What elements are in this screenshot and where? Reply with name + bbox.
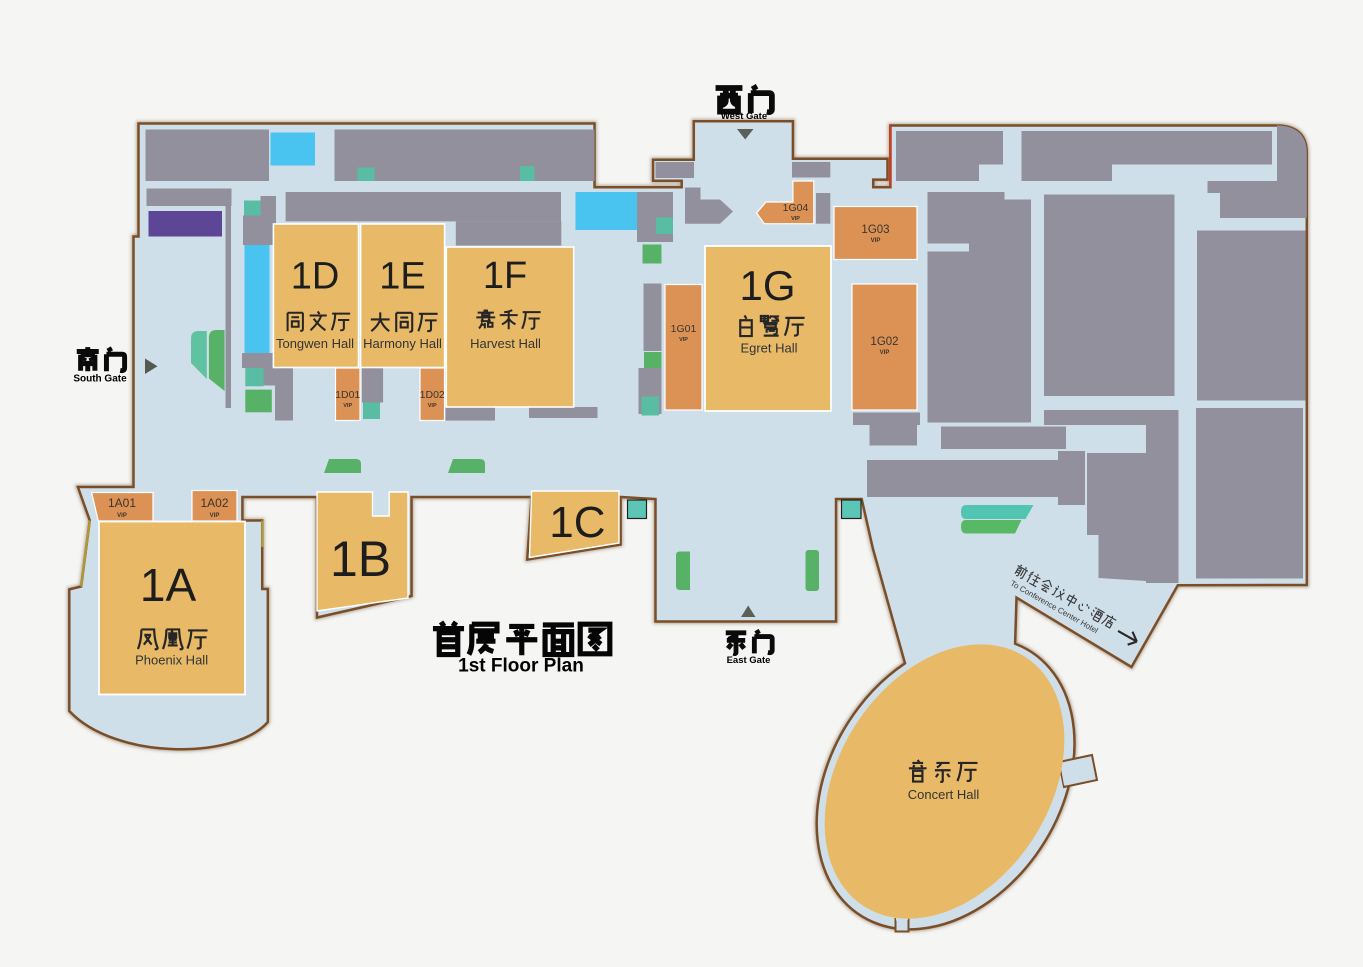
svg-text:1A02: 1A02 [200, 496, 228, 510]
svg-text:1st Floor Plan: 1st Floor Plan [458, 656, 584, 677]
svg-text:1G01: 1G01 [671, 323, 697, 335]
svg-text:1E: 1E [379, 256, 425, 298]
svg-text:1C: 1C [549, 498, 605, 547]
svg-text:East Gate: East Gate [727, 655, 771, 666]
svg-text:Phoenix Hall: Phoenix Hall [135, 653, 208, 668]
svg-text:1D01: 1D01 [335, 389, 360, 401]
svg-text:West Gate: West Gate [721, 111, 767, 122]
svg-text:VIP: VIP [210, 513, 220, 519]
svg-text:VIP: VIP [871, 238, 881, 244]
svg-text:1G04: 1G04 [783, 202, 809, 214]
svg-text:Concert Hall: Concert Hall [908, 787, 980, 802]
svg-text:VIP: VIP [343, 403, 352, 409]
svg-text:Harvest Hall: Harvest Hall [470, 336, 541, 351]
svg-text:VIP: VIP [117, 513, 127, 519]
svg-text:1G: 1G [739, 262, 795, 309]
svg-text:VIP: VIP [791, 216, 800, 222]
svg-text:1F: 1F [483, 255, 527, 297]
svg-text:VIP: VIP [679, 337, 688, 343]
svg-text:1A: 1A [140, 559, 197, 611]
svg-text:South Gate: South Gate [73, 374, 127, 385]
svg-text:1B: 1B [330, 531, 391, 587]
svg-text:Tongwen Hall: Tongwen Hall [276, 336, 354, 351]
svg-text:VIP: VIP [880, 350, 890, 356]
svg-text:VIP: VIP [428, 403, 437, 409]
svg-text:1D02: 1D02 [420, 389, 445, 401]
svg-text:1G03: 1G03 [861, 224, 889, 236]
svg-text:Egret Hall: Egret Hall [740, 341, 797, 356]
svg-text:1G02: 1G02 [870, 336, 898, 348]
svg-text:1D: 1D [291, 256, 340, 298]
svg-text:Harmony Hall: Harmony Hall [363, 336, 442, 351]
svg-text:1A01: 1A01 [108, 496, 136, 510]
